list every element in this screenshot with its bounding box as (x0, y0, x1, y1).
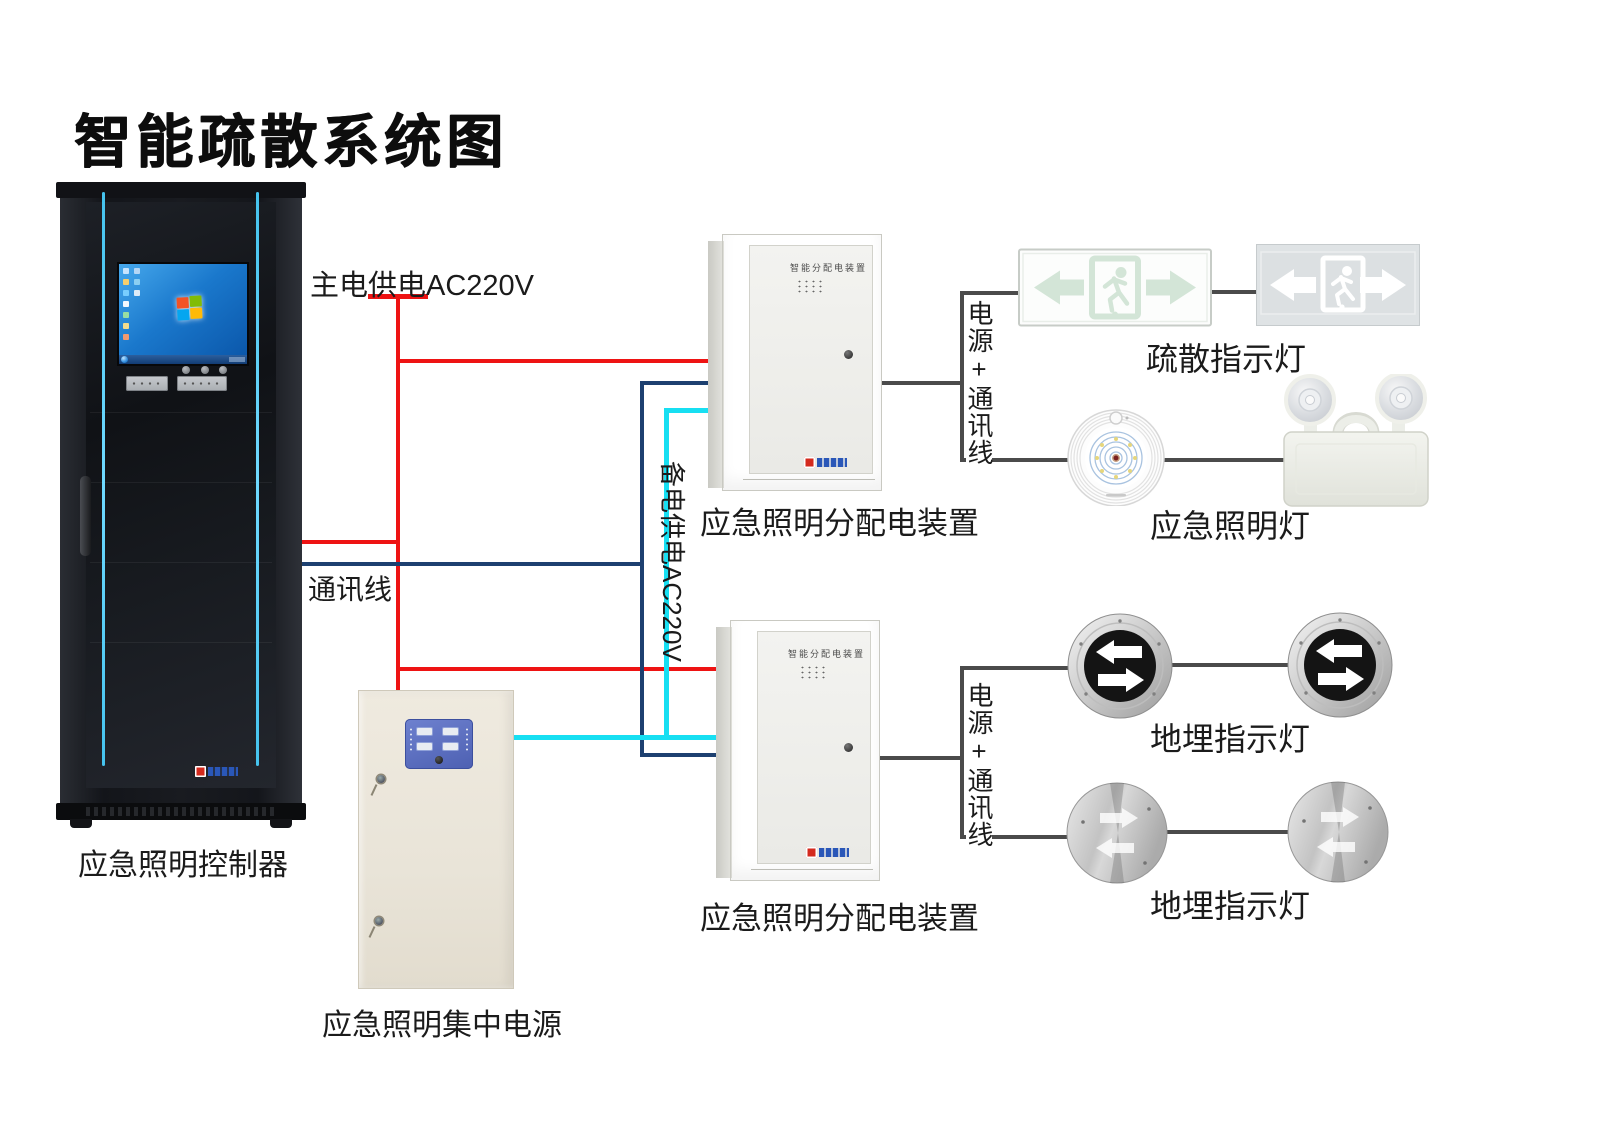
cabinet-vent (86, 807, 276, 816)
backup-power-label: 备电供电AC220V (655, 461, 692, 662)
cabinet-accent-left (102, 192, 105, 766)
twin-head-emergency-light (1282, 374, 1430, 508)
evacuation-system-diagram: 智能疏散系统图 主电供电AC220V 通讯线 备电供电AC220V 电源+通讯线… (0, 0, 1600, 1140)
psu-lock-bottom (375, 917, 383, 925)
windows-logo-icon (176, 295, 203, 320)
connector-blacklight1-to-2 (1172, 663, 1288, 667)
psu-control-panel (405, 719, 473, 769)
brand-mark-icon (804, 457, 815, 468)
connector-silverlight1-to-2 (1166, 830, 1288, 834)
cabinet-door-handle (80, 476, 91, 556)
main-power-trunk-wire (396, 296, 400, 690)
ground-lights-top-label: 地埋指示灯 (1150, 714, 1310, 760)
box-indicator-leds (799, 665, 829, 679)
psu-lock-top (377, 775, 385, 783)
ground-lights-bottom-label: 地埋指示灯 (1150, 881, 1310, 927)
brand-text-block (817, 458, 847, 467)
screen-taskbar (119, 355, 247, 364)
psu-knob (435, 756, 443, 764)
exit-sign-2 (1256, 244, 1420, 326)
cabinet-button-panel-left (126, 376, 168, 391)
comm-wire-from-cabinet (300, 562, 642, 566)
bracket1-top-branch (962, 291, 1020, 295)
controller-screen (117, 262, 249, 366)
brand-logo (806, 847, 849, 858)
power-comm-label-top: 电源+通讯线 (966, 300, 992, 466)
distribution-box-2-label: 应急照明分配电装置 (700, 893, 979, 938)
lamp-head-right (1377, 374, 1425, 422)
box-indicator-leds (796, 279, 826, 293)
brand-logo (195, 766, 238, 777)
comm-wire-to-box1 (642, 381, 708, 385)
exit-signs-label: 疏散指示灯 (1146, 334, 1306, 380)
main-power-wire-to-box2 (398, 667, 718, 671)
distribution-box-1-label: 应急照明分配电装置 (700, 498, 979, 543)
system-tray (229, 357, 245, 362)
cabinet-knob-2 (201, 366, 209, 374)
emergency-lighting-controller-cabinet (60, 186, 302, 818)
ground-indicator-silver-1 (1066, 782, 1168, 884)
brand-text-block (819, 848, 849, 857)
backup-power-wire-horizontal (512, 735, 718, 740)
exit-sign-1 (1018, 248, 1212, 327)
brand-mark-icon (806, 847, 817, 858)
comm-wire-trunk (640, 381, 644, 757)
connector-lamp-to-twinlight (1164, 458, 1286, 462)
power-supply-label: 应急照明集中电源 (322, 1000, 562, 1044)
box-lock-knob (844, 743, 853, 752)
brand-mark-icon (195, 766, 206, 777)
power-comm-label-bottom: 电源+通讯线 (966, 682, 992, 848)
connector-box1-to-bracket (882, 381, 962, 385)
ground-indicator-black-1 (1066, 612, 1174, 720)
box-panel-text: 智能分配电装置 (790, 261, 867, 274)
ground-indicator-silver-2 (1287, 781, 1389, 883)
bracket2-top-branch (962, 666, 1068, 670)
box-panel-text: 智能分配电装置 (788, 647, 865, 660)
lamp-test-button (1110, 412, 1122, 424)
cabinet-knob-1 (182, 366, 190, 374)
backup-power-wire-to-box1 (666, 408, 708, 413)
ground-indicator-black-2 (1286, 611, 1394, 719)
box-front-door: 智能分配电装置 (730, 620, 880, 881)
distribution-box-2: 智能分配电装置 (716, 620, 880, 881)
brand-logo (804, 457, 847, 468)
cabinet-base (56, 803, 306, 820)
ceiling-emergency-lamp (1066, 406, 1166, 506)
cabinet-top-cap (56, 182, 306, 198)
start-orb-icon (121, 356, 128, 363)
comm-wire-to-box2 (642, 753, 718, 757)
lamp-head-left (1286, 376, 1334, 424)
main-power-wire-to-cabinet (300, 540, 398, 544)
connector-sign1-to-sign2 (1212, 290, 1258, 294)
box-lock-knob (844, 350, 853, 359)
distribution-box-1: 智能分配电装置 (708, 234, 882, 491)
brand-text-block (208, 767, 238, 776)
main-power-wire-to-box1 (398, 359, 708, 363)
main-power-label: 主电供电AC220V (310, 262, 534, 304)
cabinet-button-panel-right (177, 376, 227, 391)
controller-label: 应急照明控制器 (78, 840, 288, 884)
cabinet-accent-right (256, 192, 259, 766)
box-front-door: 智能分配电装置 (722, 234, 882, 491)
emergency-lights-label: 应急照明灯 (1150, 501, 1310, 547)
centralized-power-supply-box (358, 690, 514, 989)
page-title: 智能疏散系统图 (74, 96, 508, 178)
connector-box2-to-bracket (880, 756, 962, 760)
comm-line-label: 通讯线 (308, 568, 392, 608)
cabinet-knob-3 (219, 366, 227, 374)
